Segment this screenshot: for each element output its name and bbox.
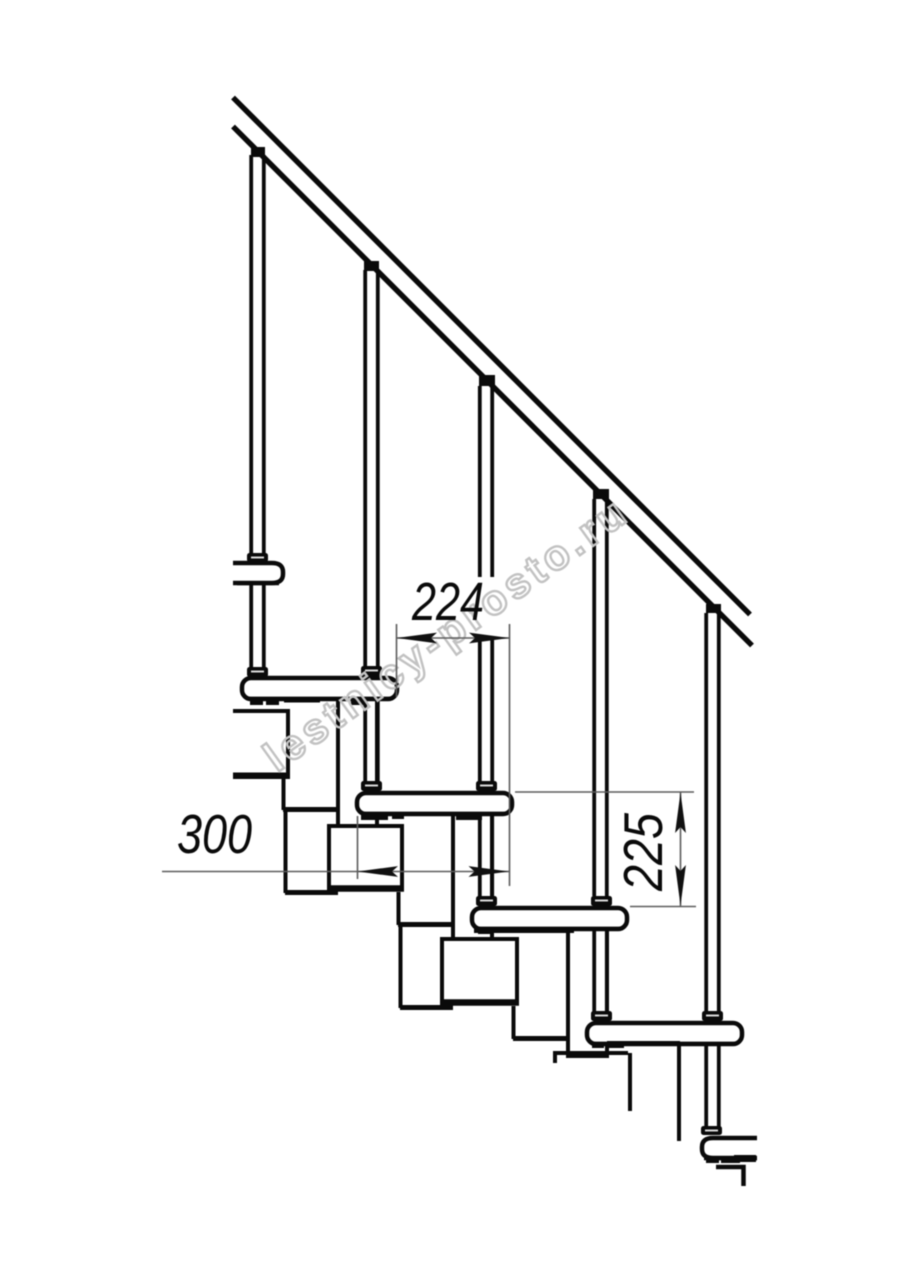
svg-text:225: 225: [612, 813, 674, 892]
svg-text:300: 300: [177, 803, 252, 865]
svg-text:224: 224: [411, 572, 484, 632]
